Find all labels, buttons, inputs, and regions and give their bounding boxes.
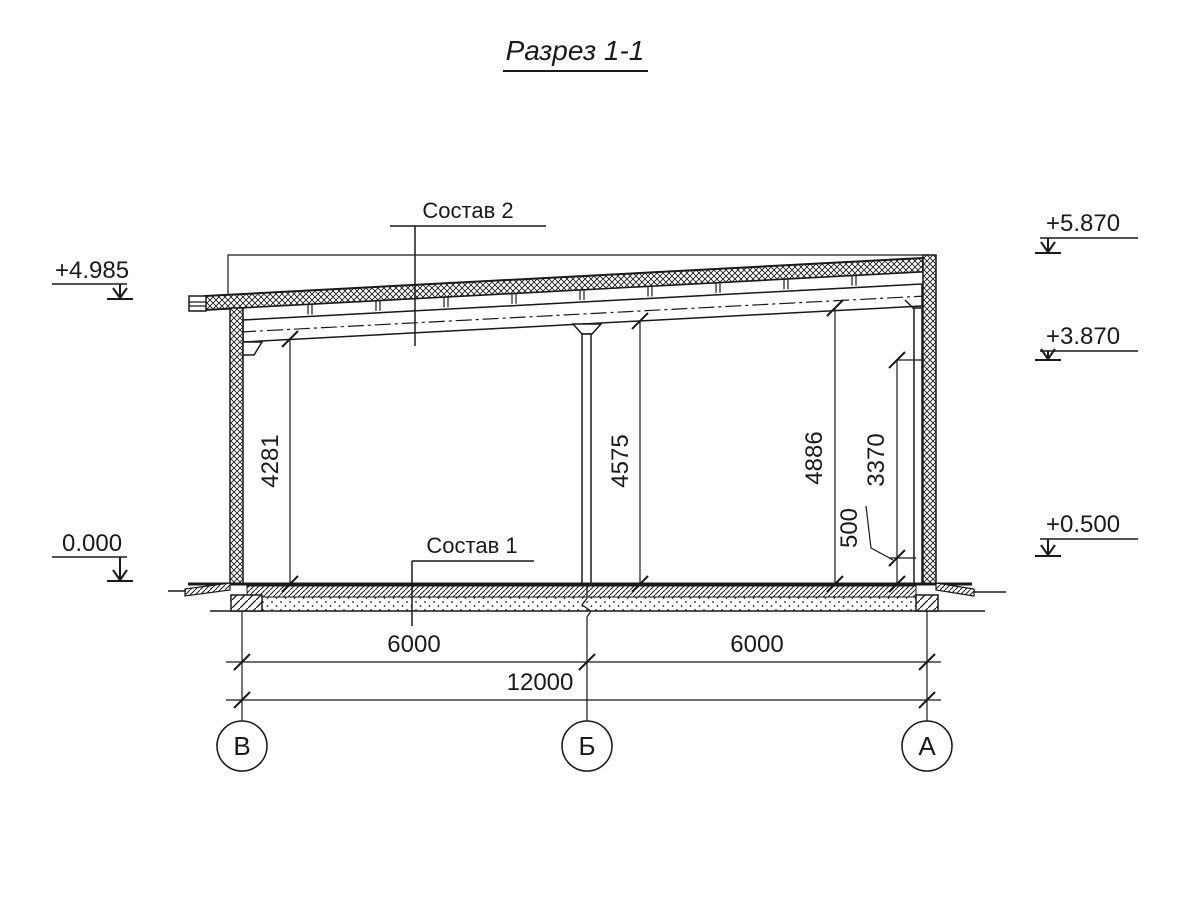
dim-4281: 4281 (257, 331, 298, 592)
drawing-title: Разрез 1-1 (503, 35, 648, 71)
floor-composition-callout: Состав 1 (412, 533, 534, 626)
right-column (905, 300, 922, 584)
elevation-right-top-value: +5.870 (1046, 210, 1120, 237)
dim-4281-value: 4281 (257, 434, 284, 487)
dim-6000-right-value: 6000 (730, 631, 783, 658)
grid-axis-a: А (902, 721, 952, 771)
floor-screed-layer (247, 586, 916, 597)
dim-3370-value: 3370 (863, 433, 890, 486)
right-wall (923, 255, 936, 584)
elevation-left-zero-value: 0.000 (62, 530, 122, 557)
foundation-left (231, 595, 262, 611)
dim-500-leader (866, 506, 893, 560)
dim-3370: 3370 (863, 352, 922, 566)
elevation-mark-left-zero: 0.000 (52, 530, 133, 581)
elevation-mark-right-low: +0.500 (1035, 511, 1138, 556)
elevation-mark-right-mid: +3.870 (1035, 323, 1138, 360)
drawing-title-text: Разрез 1-1 (506, 35, 645, 66)
dim-row-spans: 6000 6000 (226, 631, 941, 670)
elevation-right-low-value: +0.500 (1046, 511, 1120, 538)
middle-column (573, 324, 601, 584)
grid-axis-b: Б (562, 721, 612, 771)
grid-axis-a-label: А (918, 731, 936, 761)
dim-500: 500 (836, 506, 905, 592)
dim-500-value: 500 (836, 508, 863, 548)
elevation-right-mid-value: +3.870 (1046, 323, 1120, 350)
section-drawing: Разрез 1-1 (0, 0, 1200, 900)
elevation-left-top-value: +4.985 (55, 257, 129, 284)
left-wall-corbel (243, 342, 262, 355)
dim-6000-left-value: 6000 (387, 631, 440, 658)
elevation-mark-right-top: +5.870 (1035, 210, 1138, 253)
middle-column-capital (573, 324, 601, 334)
dim-4575-value: 4575 (607, 434, 634, 487)
dim-12000-value: 12000 (507, 669, 574, 696)
roof-composition-label: Состав 2 (422, 198, 513, 223)
elevation-mark-left-top: +4.985 (52, 257, 133, 299)
grid-axis-v: В (217, 721, 267, 771)
grid-axis-b-label: Б (578, 731, 595, 761)
left-wall (230, 308, 243, 584)
floor-base-layer (247, 597, 916, 611)
dim-4575: 4575 (607, 313, 648, 592)
dim-4886-value: 4886 (801, 431, 828, 484)
floor-composition-label: Состав 1 (426, 533, 517, 558)
section-drawing-sheet: Разрез 1-1 (0, 0, 1200, 900)
dim-row-total: 12000 (226, 669, 941, 708)
foundation-right (916, 595, 938, 611)
roof-assembly (189, 258, 926, 342)
grid-axis-v-label: В (233, 731, 250, 761)
eave-cap (189, 296, 206, 311)
